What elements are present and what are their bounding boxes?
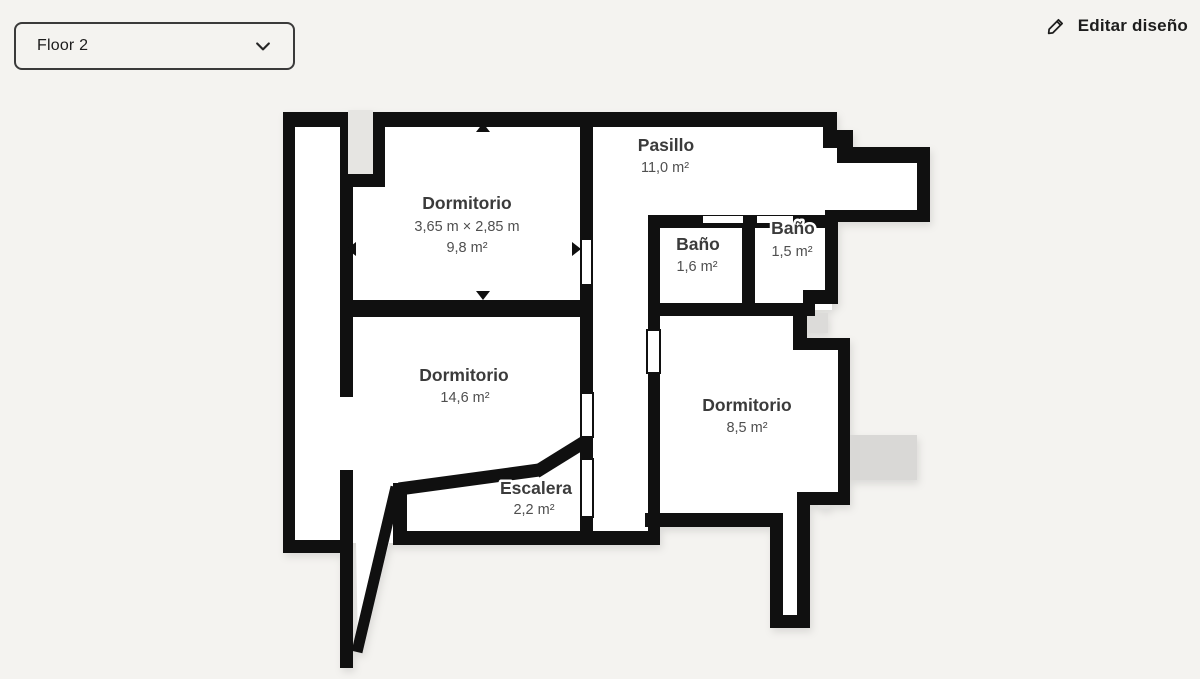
room-name: Escalera (500, 478, 572, 498)
room-name: Baño (771, 218, 815, 238)
room-name: Pasillo (638, 135, 694, 155)
room-name: Dormitorio (422, 193, 511, 213)
room-interiors (288, 118, 923, 650)
stair-niche (348, 110, 373, 174)
room-name: Dormitorio (702, 395, 791, 415)
room-area: 8,5 m² (726, 420, 767, 436)
floor-plan-canvas: Dormitorio 3,65 m × 2,85 m 9,8 m² Pasill… (0, 0, 1200, 679)
room-name: Dormitorio (419, 365, 508, 385)
room-area: 1,5 m² (771, 244, 812, 260)
room-dimensions: 3,65 m × 2,85 m (414, 219, 519, 235)
room-area: 9,8 m² (446, 240, 487, 256)
room-area: 14,6 m² (440, 390, 489, 406)
room-area: 2,2 m² (513, 502, 554, 518)
room-area: 1,6 m² (676, 259, 717, 275)
room-name: Baño (676, 234, 720, 254)
room-area: 11,0 m² (641, 160, 689, 176)
